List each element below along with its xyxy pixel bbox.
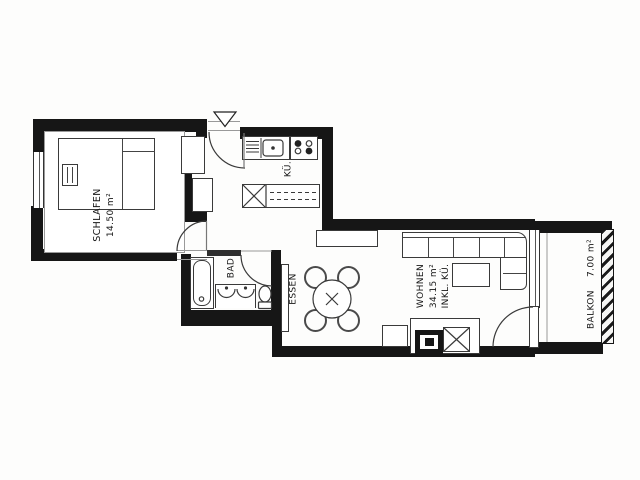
- sink-detail: [246, 138, 283, 158]
- kueche-name: KÜ.: [284, 161, 294, 177]
- entry-threshold: [177, 122, 272, 260]
- bath-door-swing: [241, 255, 272, 286]
- wohnen-note: INKL. KÜ.: [441, 264, 451, 309]
- balcony-door-swing: [493, 307, 533, 347]
- bedroom-door-swing: [177, 221, 207, 251]
- room-label-balkon: BALKON 7.00 m²: [586, 239, 599, 329]
- shaft-x: [444, 328, 469, 351]
- balkon-area: 7.00 m²: [587, 239, 597, 277]
- entrance-arrow-icon: [214, 112, 236, 127]
- room-label-bad: BAD: [226, 258, 239, 278]
- balkon-name: BALKON: [587, 290, 597, 329]
- counter-detail: [243, 185, 318, 207]
- washbasin-bowls: [218, 286, 254, 297]
- schlafen-name: SCHLAFEN: [92, 188, 103, 242]
- room-label-schlafen: SCHLAFEN 14.50 m²: [91, 188, 117, 242]
- schlafen-area: 14.50 m²: [106, 193, 116, 237]
- bad-name: BAD: [227, 258, 237, 278]
- tub-drain: [199, 297, 203, 301]
- room-label-wohnen: WOHNEN 34.15 m² INKL. KÜ.: [415, 264, 453, 309]
- stove-burners: [295, 140, 313, 154]
- wohnen-area: 34.15 m²: [429, 264, 439, 308]
- room-label-essen: ESSEN: [288, 273, 301, 305]
- entry-door-swing: [209, 132, 245, 168]
- floor-plan: SCHLAFEN 14.50 m² BAD ESSEN KÜ. WOHNEN 3…: [0, 0, 640, 480]
- wohnen-name: WOHNEN: [416, 264, 426, 308]
- room-label-kueche: KÜ.: [283, 161, 296, 177]
- toilet: [259, 286, 272, 309]
- essen-name: ESSEN: [289, 273, 299, 305]
- dining-table: [313, 280, 351, 318]
